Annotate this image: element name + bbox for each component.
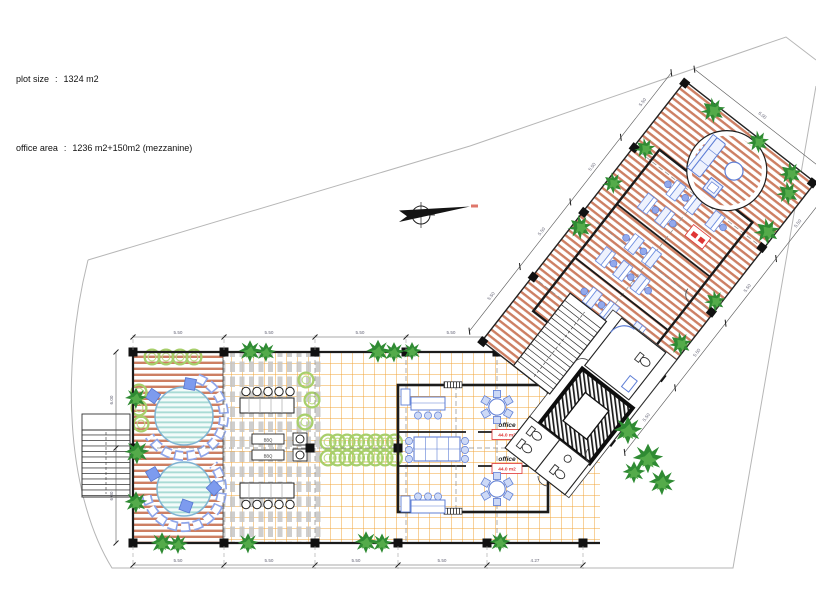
dimension-label: 5.50	[356, 330, 365, 335]
dimension-label: 4.27	[531, 558, 540, 563]
bbq-table	[240, 398, 294, 413]
desk	[411, 500, 445, 513]
floor-plan-svg: BBQ BBQ	[0, 0, 816, 616]
bbq-table	[240, 483, 294, 498]
dimension-label: 5.50	[642, 412, 652, 422]
bbq-label: BBQ	[264, 438, 274, 443]
office-label: office	[498, 422, 516, 429]
dimension-label: 5.50	[692, 347, 702, 357]
external-stair	[82, 414, 130, 497]
bbq-stools	[242, 500, 294, 508]
dimension-label: 5.50	[447, 330, 456, 335]
floor-plan-page: plot size:1324 m2 office area:1236 m2+15…	[0, 0, 816, 616]
dimension-label: 5.50	[793, 218, 803, 228]
conference-area	[405, 437, 468, 463]
dimension-label: 5.50	[743, 283, 753, 293]
office-area-value: 44.0 m2	[498, 467, 516, 473]
dimension-label: 6.00	[757, 111, 767, 121]
dimension-label: 5.50	[638, 97, 648, 107]
dimension-label: 6.00	[109, 491, 114, 500]
dimension-label: 5.50	[174, 330, 183, 335]
chairs	[414, 412, 441, 419]
dimension-label: 5.50	[265, 330, 274, 335]
dimension-label: 5.50	[587, 161, 597, 171]
north-arrow-icon	[399, 202, 478, 228]
cabinet	[401, 496, 410, 512]
vent-grille	[444, 382, 462, 388]
dimension-label: 5.50	[438, 558, 447, 563]
desk	[411, 397, 445, 410]
bbq-stools	[242, 387, 294, 395]
vent-grille	[444, 508, 462, 514]
dimension-label: 5.50	[265, 558, 274, 563]
junction-plants	[614, 417, 676, 496]
dimension-label: 5.50	[352, 558, 361, 563]
dimension-label: 5.50	[537, 226, 547, 236]
bbq-label: BBQ	[264, 454, 274, 459]
office-label: office	[498, 456, 516, 463]
dimension-label: 5.50	[174, 558, 183, 563]
cabinet	[401, 389, 410, 405]
pool	[155, 387, 213, 445]
north-label-mark	[471, 205, 478, 208]
dimension-label: 6.00	[109, 395, 114, 404]
chairs	[414, 493, 441, 500]
dimension-label: 5.50	[486, 291, 496, 301]
